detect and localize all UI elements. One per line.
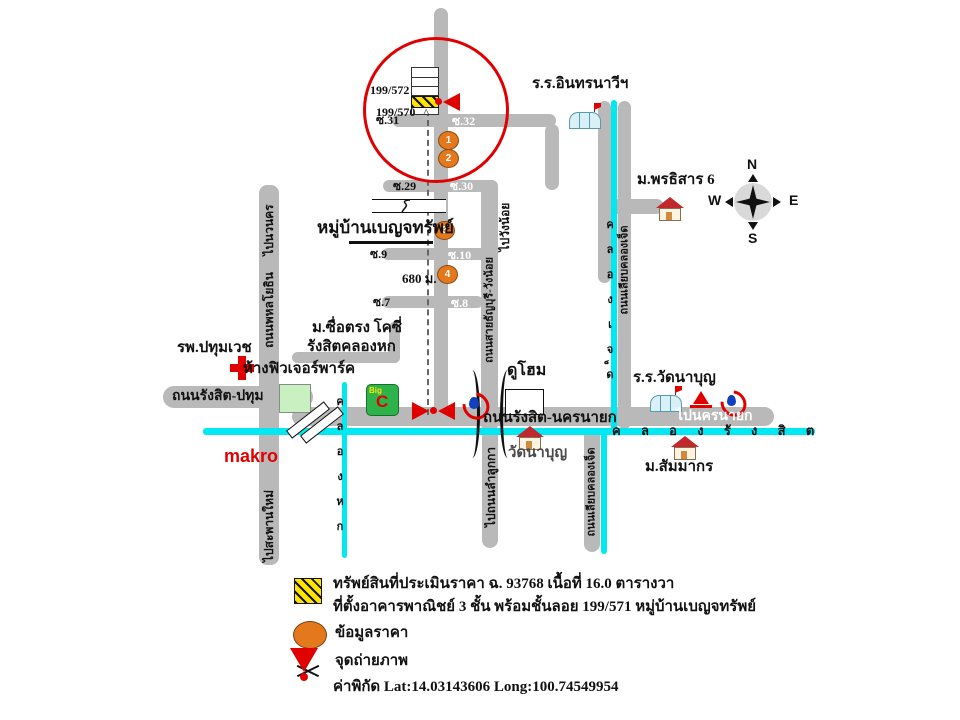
label-to-saphanmai: ไปสะพานใหม่ — [263, 490, 275, 562]
photo-point-arrow-west — [412, 402, 429, 420]
label-canal-rangsit: ค ล อ ง รั ง สิ ต — [612, 424, 816, 437]
label-suetrong-2: รังสิตคลองหก — [307, 340, 396, 355]
road-porntisan-stub — [600, 199, 664, 214]
label-to-lamlukka: ไปถนนลำลูกกา — [485, 447, 497, 527]
label-canal-khlong6: คลองหก — [333, 392, 344, 552]
label-school-inthara: ร.ร.อินทรนาวีฯ — [532, 77, 628, 92]
label-school-watnabun: ร.ร.วัดนาบุญ — [633, 371, 716, 386]
legend-line1: ทรัพย์สินที่ประเมินราคา ฉ. 93768 เนื้อที… — [333, 577, 674, 592]
legend-coordinates: ค่าพิกัด Lat:14.03143606 Long:100.745499… — [333, 680, 619, 695]
label-thanyaburi-road: ถนนสายธัญบุรี-วังน้อย — [485, 257, 496, 363]
label-soi10: ซ.10 — [448, 249, 471, 261]
legend-hatch-swatch — [294, 578, 322, 604]
house-icon-sammakorn — [671, 436, 699, 460]
photo-point-dot-junction — [430, 407, 437, 414]
legend-price-label: ข้อมูลราคา — [335, 626, 408, 641]
compass-arrow-s — [748, 222, 758, 230]
label-rangsit-pathum: ถนนรังสิต-ปทุม — [172, 390, 264, 404]
label-distance: 680 ม. — [402, 272, 437, 285]
label-to-nakhonnayok: ไปนครนายก — [676, 410, 753, 424]
road-stub-right-of-circle — [545, 124, 559, 190]
compass-arrow-e — [773, 197, 781, 207]
road-break-symbol — [372, 199, 446, 213]
unit-caret: ^ — [423, 108, 429, 119]
label-to-navanakorn: ไปนวนคร — [263, 204, 275, 255]
canal-khlong7-south — [601, 432, 607, 554]
label-wat-nabun: วัดนาบุญ — [508, 446, 567, 461]
big-c-letter: C — [376, 393, 388, 410]
label-soi7: ซ.7 — [373, 296, 390, 308]
compass-e: E — [789, 193, 798, 207]
label-to-wangnoi: ไปวังน้อย — [499, 203, 511, 252]
label-soi8: ซ.8 — [451, 297, 468, 309]
sketch-map: 199/572 199/570 ^ ซ.31 ซ.32 ซ.29 ซ.30 ซ.… — [0, 0, 960, 720]
label-rangsit-nakhonnayok: ถนนรังสิต-นครนายก — [483, 411, 617, 426]
legend-photo-label: จุดถ่ายภาพ — [335, 654, 408, 669]
gas-brand-icon — [690, 391, 712, 411]
label-makro: makro — [224, 447, 278, 465]
school-icon-inthara — [569, 112, 601, 129]
compass-arrow-n — [748, 174, 758, 182]
label-phahonyothin: ถนนพหลโยธิน — [263, 272, 275, 348]
legend-price-marker — [293, 621, 327, 649]
label-sammakorn: ม.สัมมากร — [645, 460, 713, 475]
label-future-park: ห้างฟิวเจอร์พาร์ค — [243, 362, 355, 377]
village-name-underline — [349, 241, 433, 244]
label-hospital: รพ.ปทุมเวช — [177, 341, 252, 356]
photo-point-arrow-east — [438, 402, 455, 420]
label-suetrong-1: ม.ซื่อตรง โคซี่ — [312, 321, 402, 336]
label-soi9: ซ.9 — [370, 248, 387, 260]
label-porntisan: ม.พรธิสาร 6 — [637, 173, 715, 188]
label-canal-khlong7: คลองเจ็ด — [603, 215, 614, 415]
compass-s: S — [748, 231, 757, 245]
label-liap-khlong7-north: ถนนเลียบคลองเจ็ด — [620, 225, 631, 314]
label-soi31: ซ.31 — [376, 114, 399, 126]
legend-line2: ที่ตั้งอาคารพาณิชย์ 3 ชั้น พร้อมชั้นลอย … — [333, 600, 756, 615]
label-soi30: ซ.30 — [450, 180, 473, 192]
compass-w: W — [708, 193, 721, 207]
house-icon-porntisan — [656, 197, 684, 221]
unit-number-top: 199/572 — [370, 84, 409, 96]
label-duhome: ดูโฮม — [507, 363, 546, 379]
future-park-icon — [279, 384, 311, 413]
compass-n: N — [747, 157, 757, 171]
label-liap-khlong7-south: ถนนเลียบคลองเจ็ด — [587, 447, 598, 536]
label-village-name: หมู่บ้านเบญจทรัพย์ — [317, 219, 454, 236]
marker-4: 4 — [437, 265, 458, 284]
label-soi29: ซ.29 — [393, 180, 416, 192]
legend-photo-marker — [288, 648, 322, 682]
compass-arrow-w — [725, 197, 733, 207]
compass-rose: N S W E — [706, 155, 806, 245]
label-soi32: ซ.32 — [452, 115, 475, 127]
big-c-icon: Big C — [366, 384, 399, 416]
